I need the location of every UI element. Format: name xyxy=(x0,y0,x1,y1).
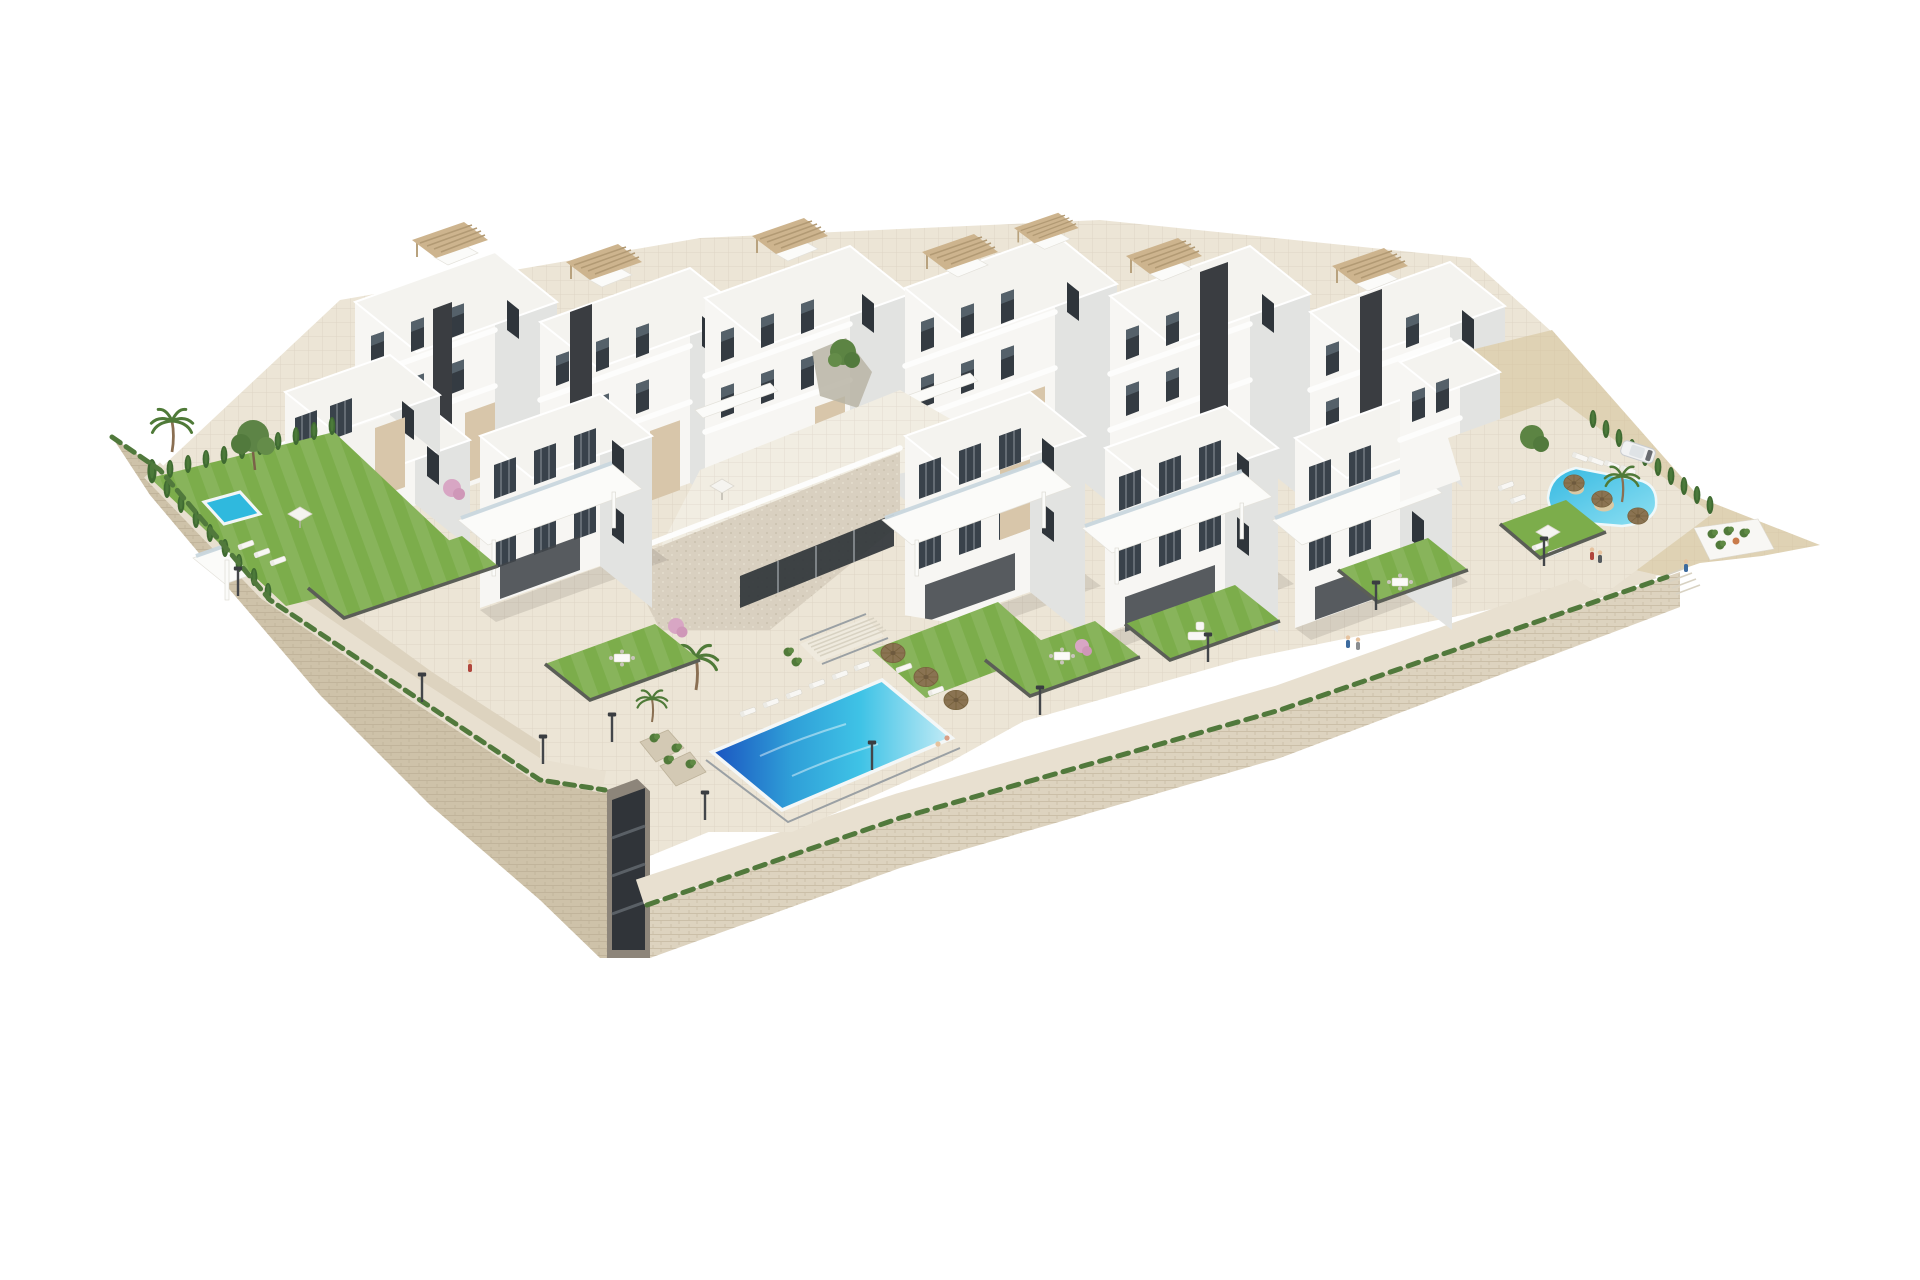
render-canvas xyxy=(0,0,1920,1280)
terrace-column xyxy=(1115,548,1119,584)
architectural-render xyxy=(0,0,1920,1280)
pool-umbrella xyxy=(944,690,968,709)
terrace-column xyxy=(1240,503,1244,539)
terrace-column xyxy=(612,492,616,528)
terrace-column xyxy=(1042,492,1046,528)
terrace-column xyxy=(225,560,229,600)
pool-umbrella xyxy=(914,667,938,686)
island-umbrella xyxy=(1564,475,1584,491)
garden-chair xyxy=(1196,622,1204,630)
pool-umbrella xyxy=(881,643,905,662)
terrace-column xyxy=(492,540,496,576)
flowering-shrub xyxy=(1733,538,1740,545)
garden-sofa xyxy=(1188,632,1206,640)
island-umbrella xyxy=(1592,491,1612,507)
deck-umbrella xyxy=(1628,508,1648,524)
terrace-column xyxy=(915,540,919,576)
